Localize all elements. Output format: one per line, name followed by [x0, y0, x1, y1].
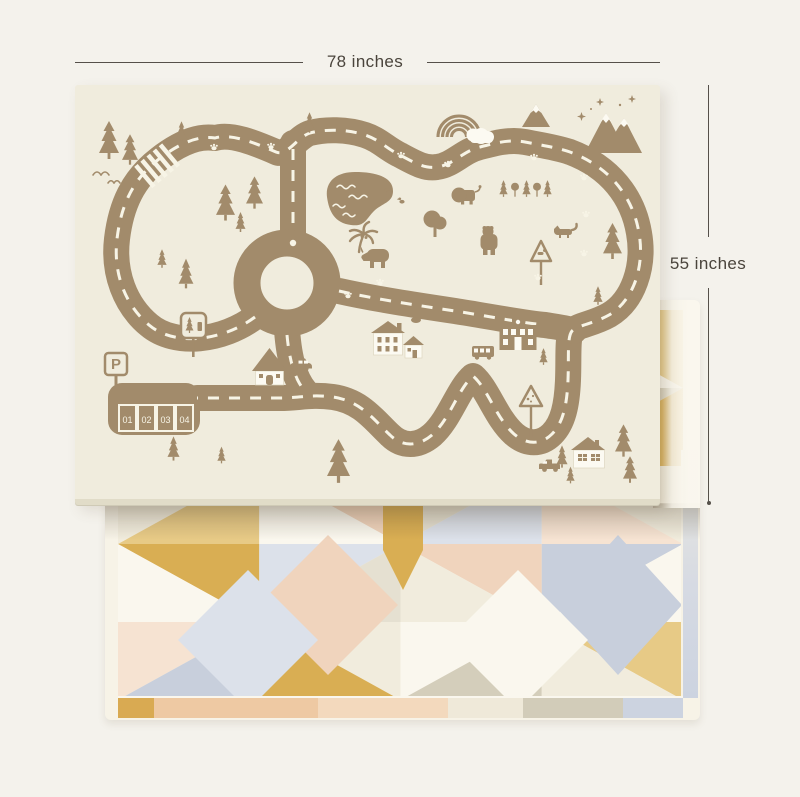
rhino-icon [361, 247, 389, 269]
parking-slot-number: 02 [141, 415, 151, 425]
product-photo-stage: 01 02 03 04 P [0, 0, 800, 797]
tall-house-icon [371, 321, 405, 355]
roundabout [247, 243, 327, 323]
parking-sign-letter: P [111, 356, 121, 373]
round-tree-icon [424, 211, 447, 238]
corner-house-icon [571, 437, 605, 468]
width-dimension-line-right [427, 62, 660, 63]
road-play-mat: 01 02 03 04 P [75, 85, 660, 505]
height-dimension-line-top [708, 85, 709, 237]
pattern-mat-corner-highlight [653, 300, 700, 508]
height-dimension-endpoint [707, 501, 711, 505]
parking-slot-number: 04 [179, 415, 189, 425]
bear-icon [481, 226, 498, 255]
parking-sign: P [105, 353, 127, 385]
lion-icon [452, 185, 482, 204]
width-dimension-line-left [75, 62, 303, 63]
deer-warning-sign [531, 241, 551, 285]
bus-icon [472, 346, 494, 360]
palm-tree-icon [350, 222, 377, 252]
parking-slot-number: 03 [160, 415, 170, 425]
height-dimension-label: 55 inches [648, 254, 768, 274]
small-house-icon [403, 336, 424, 358]
cast-shadow [105, 503, 700, 540]
road-map-art: 01 02 03 04 P [75, 85, 660, 499]
pond-icon [327, 172, 393, 225]
height-dimension-line-bottom [708, 288, 709, 503]
pattern-mat-bottom-edge [118, 696, 683, 718]
fox-icon [554, 224, 577, 238]
width-dimension-label: 78 inches [305, 52, 425, 72]
parking-slot-number: 01 [122, 415, 132, 425]
pickup-truck-icon [539, 460, 560, 472]
roundabout-marker [290, 240, 296, 246]
birds-icon [93, 172, 120, 183]
roundabout-east-road [339, 291, 574, 331]
